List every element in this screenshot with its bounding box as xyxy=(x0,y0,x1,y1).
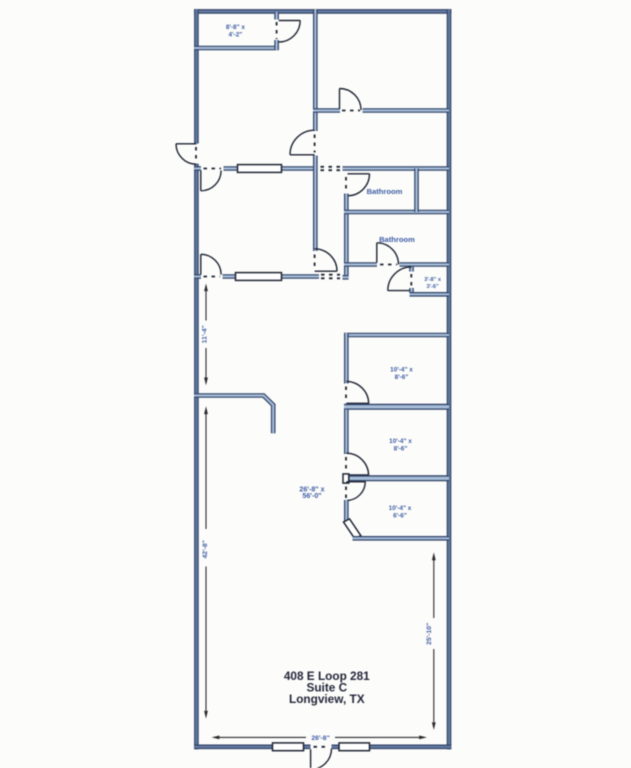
svg-text:Bathroom: Bathroom xyxy=(367,187,403,196)
svg-text:6'-6": 6'-6" xyxy=(393,512,407,519)
svg-text:56'-0": 56'-0" xyxy=(302,492,321,500)
svg-text:8'-6": 8'-6" xyxy=(395,374,409,381)
svg-text:3'-6": 3'-6" xyxy=(427,284,439,290)
svg-text:10'-4" x: 10'-4" x xyxy=(390,367,413,374)
svg-text:8'-6": 8'-6" xyxy=(394,445,408,452)
svg-text:42'-8": 42'-8" xyxy=(202,540,209,558)
svg-text:10'-4" x: 10'-4" x xyxy=(389,505,412,512)
svg-text:26'-8": 26'-8" xyxy=(311,735,329,742)
svg-text:25'-10": 25'-10" xyxy=(426,623,433,645)
svg-text:4'-2": 4'-2" xyxy=(229,31,243,38)
svg-text:Longview, TX: Longview, TX xyxy=(289,692,365,706)
svg-text:3'-8" x: 3'-8" x xyxy=(424,277,442,283)
svg-text:8'-8" x: 8'-8" x xyxy=(226,24,246,31)
svg-text:Bathroom: Bathroom xyxy=(379,235,415,244)
svg-text:11'-4": 11'-4" xyxy=(201,325,208,343)
svg-text:10'-4" x: 10'-4" x xyxy=(389,438,412,445)
